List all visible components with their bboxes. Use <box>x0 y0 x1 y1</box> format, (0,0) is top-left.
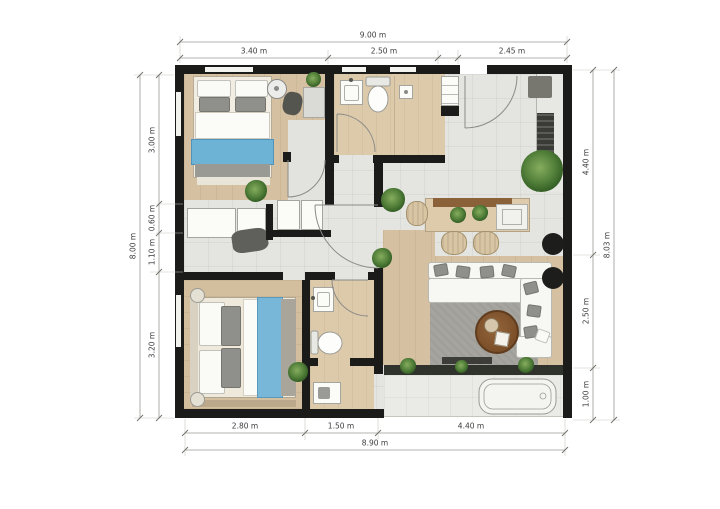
door-arc-bathroom2 <box>332 280 368 316</box>
dimension-label-left-seg3: 1.10 m <box>148 237 156 267</box>
plan-linework <box>0 0 720 509</box>
pendant-lamp <box>542 267 564 289</box>
bathroom-1-toilet <box>366 77 390 112</box>
dimension-label-top-seg3: 2.45 m <box>497 47 527 55</box>
pendant-lamp <box>542 233 564 255</box>
dimension-label-top-seg2: 2.50 m <box>369 47 399 55</box>
dimension-label-left-seg2: 0.60 m <box>148 203 156 233</box>
dimension-label-top-seg1: 3.40 m <box>239 47 269 55</box>
door-arc-bathroom1 <box>337 114 375 152</box>
dimension-label-bottom-total: 8.90 m <box>360 439 390 447</box>
dimension-label-top-total: 9.00 m <box>358 31 388 39</box>
door-arc-bedroom1 <box>288 160 325 197</box>
dimension-label-right-total: 8.03 m <box>603 230 611 260</box>
bathtub <box>479 379 556 414</box>
door-arc-hallway <box>315 205 378 268</box>
dimension-label-right-seg2: 2.50 m <box>582 296 590 326</box>
dimension-label-bottom-seg1: 2.80 m <box>230 422 260 430</box>
dimension-label-bottom-seg3: 4.40 m <box>456 422 486 430</box>
dimension-label-bottom-seg2: 1.50 m <box>326 422 356 430</box>
door-arc-entry <box>465 76 517 128</box>
dimension-label-left-total: 8.00 m <box>129 231 137 261</box>
dimension-label-right-seg3: 1.00 m <box>582 379 590 409</box>
bathroom-2-toilet <box>311 331 342 354</box>
dimension-label-left-seg4: 3.20 m <box>148 330 156 360</box>
dimension-label-left-seg1: 3.00 m <box>148 125 156 155</box>
dimension-label-right-seg1: 4.40 m <box>582 147 590 177</box>
floor-plan-canvas: 9.00 m 3.40 m 2.50 m 2.45 m 8.00 m 3.00 … <box>0 0 720 509</box>
